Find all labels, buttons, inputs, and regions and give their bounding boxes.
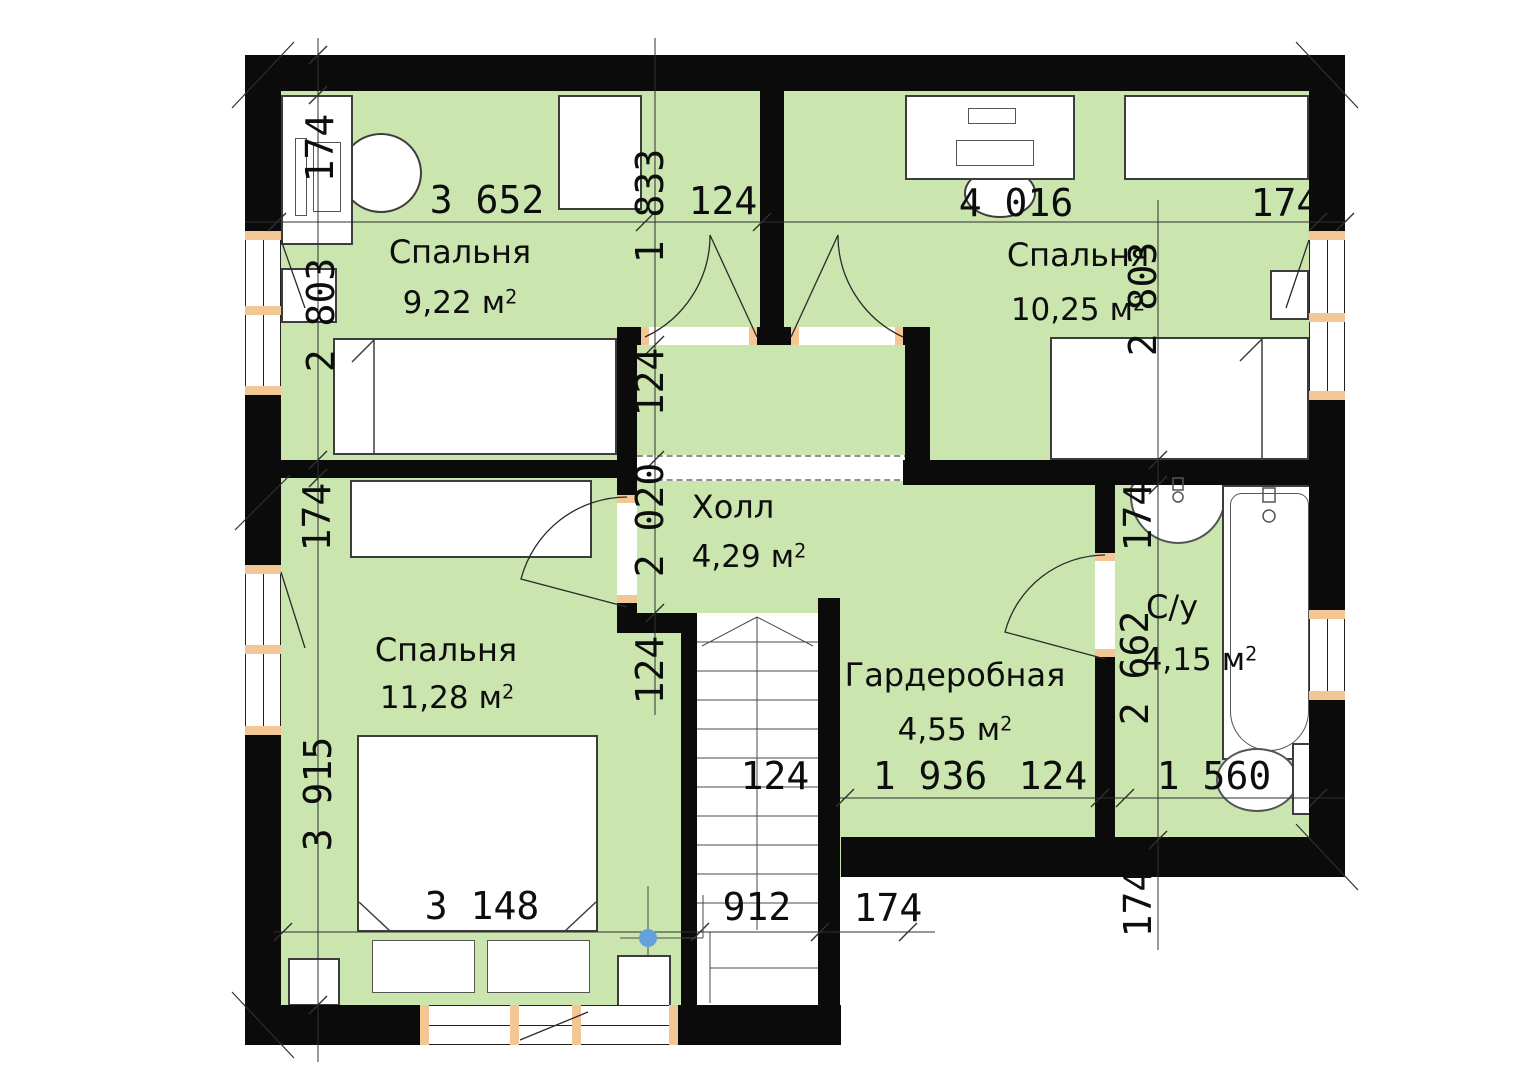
dim-174-top-right: 174 xyxy=(1251,184,1320,222)
nightstand-2 xyxy=(1270,270,1309,320)
dim-1833: 1 833 xyxy=(631,149,669,263)
door-jamb xyxy=(1095,553,1115,561)
dim-4016: 4 016 xyxy=(959,184,1073,222)
window-right-bath xyxy=(1309,610,1345,700)
window-sill xyxy=(245,726,281,735)
door-jamb xyxy=(617,595,637,603)
wall-room2-bottom xyxy=(903,460,1345,485)
dim-174-left-mid: 174 xyxy=(298,483,336,552)
nightstand-3-right xyxy=(617,955,671,1010)
window-sill xyxy=(669,1005,678,1045)
wall-left-a xyxy=(245,91,281,231)
wall-hall-right xyxy=(905,345,930,460)
window-sill xyxy=(1309,231,1345,240)
monitor-2-icon xyxy=(968,108,1016,124)
wall-top xyxy=(245,55,1345,91)
window-sill xyxy=(245,306,281,315)
wall-mid-bedrooms xyxy=(760,91,784,345)
dim-174-top-left: 174 xyxy=(301,114,339,183)
dim-1936: 1 936 xyxy=(873,757,987,795)
dim-124-top: 124 xyxy=(689,182,758,220)
bed-1 xyxy=(333,338,617,455)
pillow-3b xyxy=(487,940,590,993)
wall-hall-top-b xyxy=(903,327,930,345)
room-label-hall: Холл xyxy=(692,491,774,523)
nightstand-3-left xyxy=(288,958,340,1006)
dim-3915: 3 915 xyxy=(299,737,337,851)
wall-room1-bottom xyxy=(281,460,637,478)
keyboard-2-icon xyxy=(956,140,1034,166)
room-area-bathroom: 4,15м2 xyxy=(1143,644,1258,676)
wall-bath-bottom xyxy=(841,837,1345,877)
wardrobe-cabinet-3 xyxy=(350,480,592,558)
dim-2020: 2 020 xyxy=(631,463,669,577)
window-sill xyxy=(1309,610,1345,619)
dim-174-bottom-right: 174 xyxy=(1119,869,1157,938)
window-sill xyxy=(420,1005,429,1045)
window-sill xyxy=(245,231,281,240)
wall-stairs-right xyxy=(818,598,840,1045)
dim-2662: 2 662 xyxy=(1116,611,1154,725)
dim-124-stairs: 124 xyxy=(741,757,810,795)
wall-hall-top-post xyxy=(757,327,791,345)
door-jamb xyxy=(641,327,649,345)
bed-2 xyxy=(1050,337,1309,460)
room-area-hall: 4,29м2 xyxy=(692,541,807,573)
window-sill xyxy=(510,1005,519,1045)
dim-2803-right: 2 803 xyxy=(1124,242,1162,356)
dim-174-bottom-mid: 174 xyxy=(854,889,923,927)
wall-bath-left xyxy=(1095,485,1115,877)
room-label-bedroom-tl: Спальня xyxy=(389,236,531,268)
pillow-3a xyxy=(372,940,475,993)
staircase xyxy=(697,613,818,1005)
dim-1560: 1 560 xyxy=(1157,757,1271,795)
window-sill xyxy=(245,645,281,654)
room-label-bedroom-bl: Спальня xyxy=(375,634,517,666)
door-jamb xyxy=(749,327,757,345)
window-sill xyxy=(1309,391,1345,400)
window-sill xyxy=(245,386,281,395)
dim-124-wardrobe: 124 xyxy=(1019,757,1088,795)
door-opening-bedroom-tr xyxy=(791,327,903,345)
door-jamb xyxy=(1095,649,1115,657)
wall-stairs-left xyxy=(681,613,697,1005)
wall-right-b xyxy=(1309,400,1345,610)
wall-left-b xyxy=(245,395,281,565)
door-jamb xyxy=(791,327,799,345)
room-area-wardrobe: 4,55м2 xyxy=(898,714,1013,746)
window-sill xyxy=(1309,313,1345,322)
dim-124-hall-upper: 124 xyxy=(631,348,669,417)
floor-plan: Спальня 9,22м2 Спальня 10,25м2 Холл 4,29… xyxy=(0,0,1527,1080)
room-area-bedroom-bl: 11,28м2 xyxy=(380,682,514,714)
window-sill xyxy=(1309,691,1345,700)
wall-left-c xyxy=(245,735,281,1045)
hall-dashed-opening xyxy=(637,455,910,481)
window-bottom xyxy=(420,1005,678,1045)
dim-174-bath-top: 174 xyxy=(1119,483,1157,552)
room-label-wardrobe: Гардеробная xyxy=(845,659,1066,691)
dim-912: 912 xyxy=(723,888,792,926)
dim-124-hall-lower: 124 xyxy=(631,636,669,705)
dim-3148: 3 148 xyxy=(425,887,539,925)
door-jamb xyxy=(895,327,903,345)
dim-2803-left: 2 803 xyxy=(302,258,340,372)
dim-3652: 3 652 xyxy=(430,181,544,219)
door-opening-bedroom-tl xyxy=(641,327,757,345)
bathtub-inner xyxy=(1230,493,1309,751)
wardrobe-cabinet-2 xyxy=(1124,95,1309,180)
window-sill xyxy=(572,1005,581,1045)
window-sill xyxy=(245,565,281,574)
room-area-bedroom-tl: 9,22м2 xyxy=(403,287,518,319)
door-opening-bathroom xyxy=(1095,553,1115,657)
